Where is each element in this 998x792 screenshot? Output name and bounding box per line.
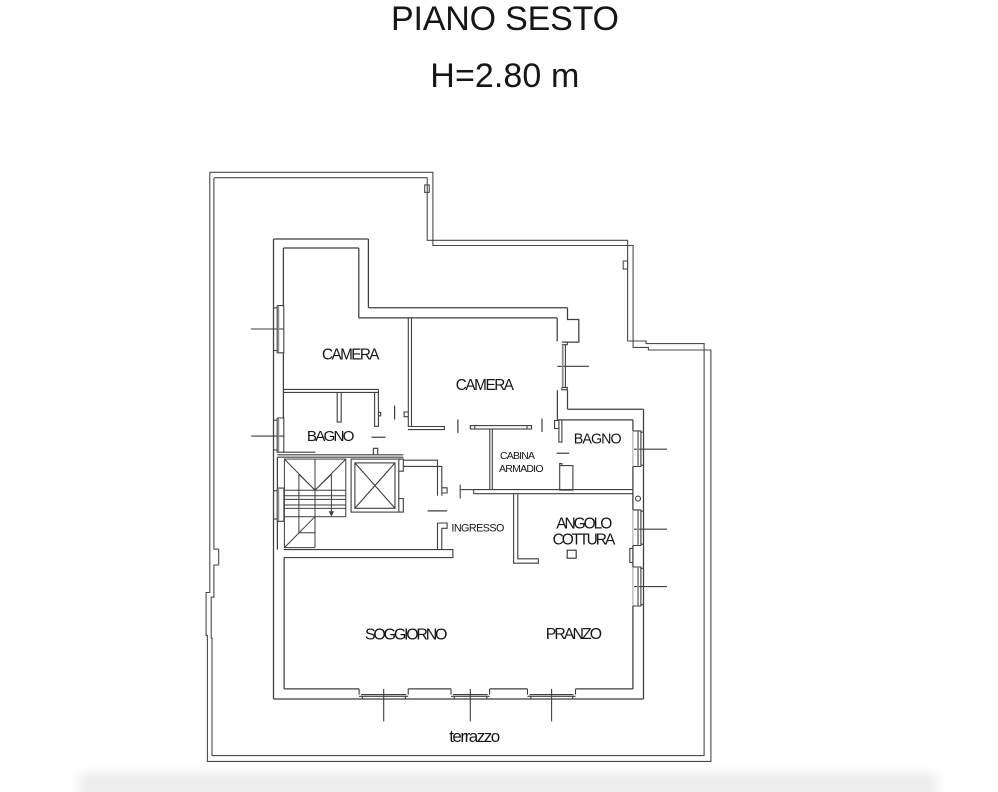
- svg-text:terrazzo: terrazzo: [449, 727, 500, 746]
- svg-text:PIANO SESTO: PIANO SESTO: [391, 0, 619, 38]
- svg-text:ARMADIO: ARMADIO: [499, 463, 544, 475]
- svg-text:CABINA: CABINA: [500, 450, 535, 462]
- svg-text:ANGOLO: ANGOLO: [556, 515, 612, 532]
- svg-text:INGRESSO: INGRESSO: [451, 522, 504, 534]
- svg-text:PRANZO: PRANZO: [546, 626, 602, 643]
- svg-text:BAGNO: BAGNO: [307, 428, 355, 445]
- svg-text:CAMERA: CAMERA: [456, 377, 515, 394]
- svg-text:COTTURA: COTTURA: [553, 531, 616, 548]
- svg-text:SOGGIORNO: SOGGIORNO: [365, 626, 448, 643]
- svg-text:H=2.80 m: H=2.80 m: [430, 57, 579, 95]
- svg-text:CAMERA: CAMERA: [322, 347, 380, 364]
- svg-text:BAGNO: BAGNO: [574, 432, 622, 448]
